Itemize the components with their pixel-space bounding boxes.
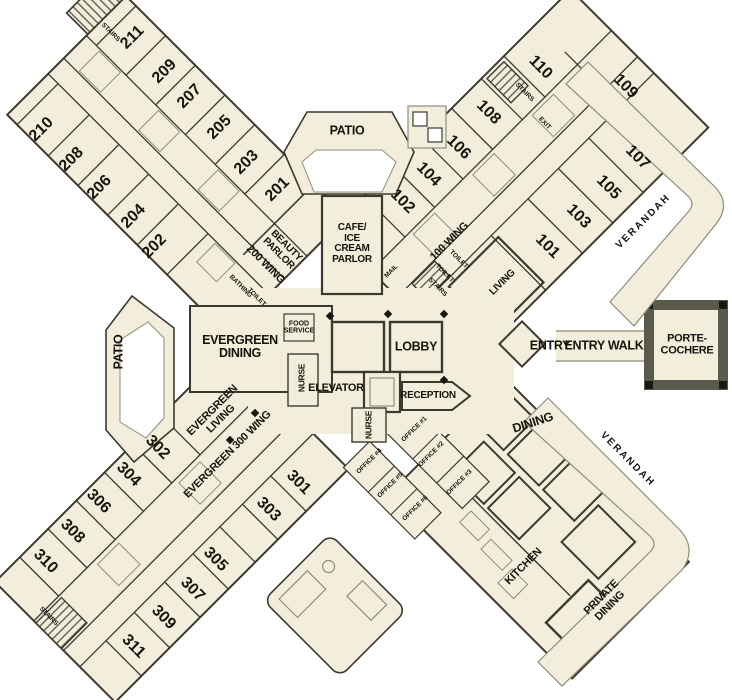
patio-left [106,296,174,462]
entry-walk-label: ENTRY WALK [565,339,644,352]
cafe-label: CAFE/ ICE CREAM PARLOR [332,223,372,265]
lobby-label: LOBBY [395,340,437,353]
nurse-1-label: NURSE [298,364,307,392]
service-block [264,534,407,677]
lobby-court-west [332,322,384,372]
nurse-2-label: NURSE [365,411,374,439]
patio-left-label: PATIO [112,335,125,370]
evergreen-dining-label: EVERGREEN DINING [202,334,278,360]
porte-cochere-label: PORTE- COCHERE [661,333,714,356]
reception-label: RECEPTION [400,391,456,402]
patio-top-label: PATIO [330,124,365,137]
food-service-label: FOOD SERVICE [284,321,315,336]
floor-plan: 211 209 207 205 203 201 210 208 206 204 … [0,0,732,700]
elevator-label: ELEVATOR [308,383,364,395]
trellis-structure [408,106,446,148]
